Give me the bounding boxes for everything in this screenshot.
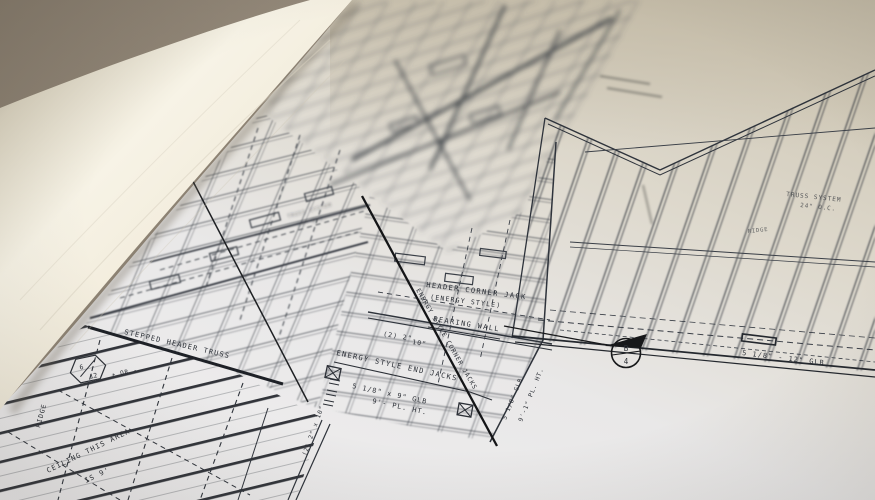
photo-vignette bbox=[0, 0, 875, 500]
blueprint-plan-svg: TRUSS SYSTEM 24" O.C. bbox=[0, 0, 875, 500]
blueprint-photo: TRUSS SYSTEM 24" O.C. bbox=[0, 0, 875, 500]
